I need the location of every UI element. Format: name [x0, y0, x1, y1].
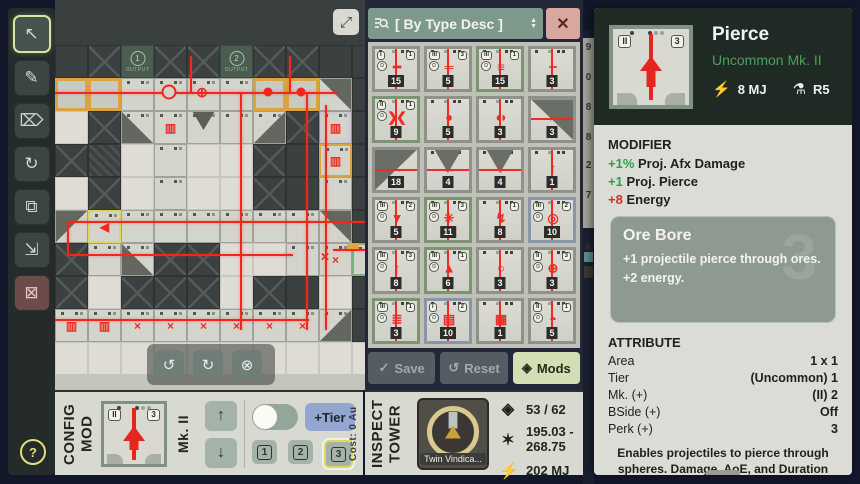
map-tile[interactable]: 2OUTPUT [220, 45, 253, 78]
mod-item[interactable]: ↯18 [476, 197, 524, 243]
map-tile[interactable] [121, 144, 154, 177]
damage-range-icon: ✶ [499, 430, 517, 450]
mod-glyph: ↑ [550, 161, 555, 174]
mod-glyph: ↯ [496, 212, 505, 225]
map-tile[interactable] [220, 144, 253, 177]
config-mod-preview-icon: II 3 [101, 401, 167, 467]
readout-char: 8 [583, 102, 594, 113]
map-tile[interactable] [55, 111, 88, 144]
tier-badge: 2 [406, 202, 415, 211]
map-tile[interactable] [286, 210, 319, 243]
tile-glyph: ▥ [330, 154, 341, 166]
energy-icon: ⚡ [712, 80, 731, 98]
map-tile[interactable] [154, 177, 187, 210]
erase-tool[interactable]: ⌦ [14, 103, 50, 139]
mod-count: 1 [494, 327, 505, 339]
map-tile[interactable]: × [154, 309, 187, 342]
mod-count: 15 [492, 75, 508, 87]
beam-line [55, 319, 309, 321]
attribute-row: Area1 x 1 [608, 354, 838, 368]
mk-badge: II [533, 252, 542, 261]
config-mod-panel: CONFIG MOD II 3 Mk. II ↑ ↓ +Tier 123 Cos… [55, 390, 363, 475]
map-tile[interactable] [220, 210, 253, 243]
map-tile[interactable] [319, 309, 352, 342]
readout-char: 0 [583, 72, 594, 83]
detail-body: MODIFIER +1% Proj. Afx Damage+1 Proj. Pi… [594, 125, 852, 475]
mk-badge: II [377, 101, 386, 110]
map-tile[interactable] [187, 144, 220, 177]
mod-glyph: ▲ [443, 262, 454, 275]
mod-item[interactable]: ❯❮II1⊙9 [372, 96, 420, 142]
map-tile[interactable] [187, 177, 220, 210]
map-tile[interactable] [187, 276, 220, 309]
beam-orange-marker [347, 243, 359, 249]
map-tile[interactable] [121, 243, 154, 276]
beam-line [67, 254, 293, 256]
tile-glyph: ▥ [165, 121, 176, 133]
tier-badge: 1 [562, 303, 571, 312]
tower-stats: ◈53 / 62✶195.03 - 268.75⚡202 MJ [499, 399, 574, 481]
mod-glyph: ≡ [497, 61, 503, 74]
mod-slots-value: 53 / 62 [526, 402, 566, 417]
beam-line [67, 221, 365, 223]
map-tile[interactable] [88, 111, 121, 144]
mod-item[interactable]: ↑4 [476, 147, 524, 193]
map-tile[interactable]: ◀ [88, 210, 121, 243]
tower-name-label: Twin Vindica... [420, 453, 486, 465]
mod-count: 1 [546, 176, 557, 188]
gear-badge-icon: ⊙ [377, 262, 387, 272]
bside-toggle[interactable] [252, 404, 298, 430]
map-tile[interactable] [286, 144, 319, 177]
map-tile[interactable] [286, 243, 319, 276]
mod-count: 3 [546, 126, 557, 138]
mod-item[interactable]: →18 [372, 147, 420, 193]
mods-header: [ By Type Desc ] ▲▼ ✕ [368, 8, 580, 39]
cancel-button[interactable]: ⊗ [232, 350, 262, 379]
map-tile[interactable] [154, 144, 187, 177]
beam-line [67, 221, 69, 255]
mod-item[interactable]: ←3 [528, 96, 576, 142]
mod-count: 3 [546, 277, 557, 289]
background-readout-strip: 908827k [583, 30, 594, 484]
output-label: OUTPUT [221, 67, 252, 73]
mod-item[interactable]: ≡III1⊙15 [476, 46, 524, 92]
modifier-line: +1% Proj. Afx Damage [608, 156, 838, 171]
mod-item[interactable]: ↑III3⊙8 [372, 247, 420, 293]
mk-badge: III [377, 303, 388, 312]
beam-dot-marker [297, 88, 306, 97]
map-tile[interactable] [121, 78, 154, 111]
save-button[interactable]: ✓ Save [368, 352, 435, 384]
perk-level-1-button[interactable]: 1 [252, 440, 277, 464]
item-rarity: Uncommon Mk. II [712, 52, 822, 68]
map-tile[interactable] [121, 177, 154, 210]
map-tile[interactable] [121, 111, 154, 144]
mk-badge: I [429, 303, 437, 312]
map-tile[interactable] [286, 177, 319, 210]
gear-badge-icon: ⊙ [481, 61, 491, 71]
attribute-row: Perk (+)3 [608, 422, 838, 436]
map-tile[interactable] [352, 309, 365, 342]
help-button[interactable]: ? [20, 439, 46, 465]
map-tile[interactable] [352, 45, 365, 78]
mod-glyph: ≣ [392, 312, 401, 325]
map-tile[interactable] [220, 276, 253, 309]
mk-badge: III [377, 252, 388, 261]
map-tile[interactable] [220, 78, 253, 111]
tile-glyph: ▥ [330, 121, 341, 133]
tier-badge: 3 [458, 202, 467, 211]
map-tile[interactable]: × [220, 309, 253, 342]
modifier-heading: MODIFIER [608, 137, 838, 152]
mod-item[interactable]: ═III3⊙5 [424, 46, 472, 92]
mod-glyph: ━ [393, 61, 399, 74]
attribute-row: Tier(Uncommon) 1 [608, 371, 838, 385]
gear-badge-icon: ⊙ [429, 313, 439, 323]
map-tile[interactable] [253, 111, 286, 144]
map-tile[interactable]: ▥ [319, 111, 352, 144]
mod-glyph: ❯❮ [387, 111, 405, 124]
mod-item[interactable]: ✳III3⊙11 [424, 197, 472, 243]
map-tile[interactable]: ▥ [154, 111, 187, 144]
map-tile[interactable] [352, 210, 365, 243]
reset-icon: ↺ [448, 360, 459, 376]
chevron-updown-icon: ▲▼ [530, 18, 537, 30]
draw-tool[interactable]: ✎ [14, 60, 50, 96]
mk-badge: III [429, 51, 440, 60]
mod-count: 3 [390, 327, 401, 339]
energy-icon: ⚡ [499, 461, 517, 481]
close-button[interactable]: ✕ [546, 8, 580, 39]
tile-glyph: ▥ [99, 319, 110, 331]
map-tile[interactable] [253, 276, 286, 309]
map-tile[interactable] [154, 276, 187, 309]
map-tile[interactable] [55, 144, 88, 177]
mod-glyph: ╌ [549, 61, 555, 74]
map-tile[interactable]: × [121, 309, 154, 342]
map-tile[interactable] [352, 342, 365, 375]
mod-count: 5 [546, 327, 557, 339]
mod-item[interactable]: ▼III2⊙5 [372, 197, 420, 243]
map-tile[interactable] [154, 243, 187, 276]
map-tile[interactable] [88, 177, 121, 210]
gear-badge-icon: ⊙ [429, 61, 439, 71]
mod-item[interactable]: ◓II1⊙5 [528, 298, 576, 344]
perk-card: Ore Bore +1 projectile pierce through or… [610, 216, 836, 323]
map-tile[interactable] [121, 210, 154, 243]
map-tile[interactable] [55, 78, 88, 111]
map-tile[interactable] [253, 210, 286, 243]
mod-item[interactable]: ▲III1⊙6 [424, 247, 472, 293]
mod-count: 8 [494, 226, 505, 238]
tier-badge: 2 [562, 202, 571, 211]
mk-level-label: Mk. II [175, 396, 191, 472]
attribute-row: Mk. (+)(II) 2 [608, 388, 838, 402]
map-viewport[interactable]: 1OUTPUT2OUTPUT▥▥▥◀×▥▥××××××⊕× ⤢ ↺ ↻ ⊗ [55, 0, 365, 390]
item-stats: ⚡8 MJ ⚗R5 [712, 80, 830, 98]
map-tile[interactable] [220, 243, 253, 276]
config-mod-title: CONFIG MOD [61, 396, 96, 472]
map-tile[interactable] [88, 144, 121, 177]
readout-char: 9 [583, 42, 594, 53]
map-tile[interactable] [352, 276, 365, 309]
mod-grid: ━I1⊙15═III3⊙5≡III1⊙15╌3❯❮II1⊙9●5◖◗3←3→18… [368, 42, 580, 348]
readout-char: 8 [583, 132, 594, 143]
map-tile[interactable] [88, 276, 121, 309]
gear-badge-icon: ⊙ [377, 212, 387, 222]
mod-glyph: ▼ [391, 212, 402, 225]
tile-glyph: × [233, 319, 240, 331]
mod-item[interactable]: ◖◗3 [476, 96, 524, 142]
perk-level-buttons: 123 [252, 440, 353, 468]
item-title: Pierce [712, 24, 769, 46]
reset-button[interactable]: ↺ Reset [440, 352, 507, 384]
map-tile[interactable] [55, 276, 88, 309]
tier-badge: 3 [406, 252, 415, 261]
map-tile[interactable] [319, 210, 352, 243]
mk-badge: I [377, 51, 385, 60]
mod-item[interactable]: ≣III1⊙3 [372, 298, 420, 344]
map-tile[interactable] [55, 243, 88, 276]
scroll-handle[interactable] [706, 470, 740, 475]
map-tile[interactable] [154, 45, 187, 78]
map-tile[interactable] [352, 78, 365, 111]
toggle-knob [253, 405, 277, 429]
mod-count: 3 [494, 126, 505, 138]
map-tile[interactable]: × [187, 309, 220, 342]
check-icon: ✓ [379, 360, 390, 376]
map-tile[interactable] [154, 210, 187, 243]
mk-badge: III [429, 202, 440, 211]
tier-badge: 1 [406, 303, 415, 312]
map-tile[interactable] [286, 111, 319, 144]
delete-tool[interactable]: ⊠ [14, 275, 50, 311]
tower-flask-icon [445, 425, 461, 438]
sort-label: [ By Type Desc ] [395, 16, 524, 32]
mod-glyph: ⊕ [548, 262, 557, 275]
mod-count: 5 [442, 126, 453, 138]
mod-count: 10 [440, 327, 456, 339]
tool-sidebar: ↖✎⌦↻⧉⇲⊠ ? [8, 8, 55, 475]
map-tile[interactable] [352, 144, 365, 177]
map-tile[interactable] [286, 342, 319, 375]
map-tile[interactable]: × [253, 309, 286, 342]
perk-watermark: 3 [781, 225, 817, 289]
map-tile[interactable] [121, 276, 154, 309]
detail-header: II 3 Pierce Uncommon Mk. II ⚡8 MJ ⚗R5 [594, 8, 852, 125]
energy-value: 8 MJ [738, 82, 767, 97]
beam-line [325, 105, 327, 330]
select-tool[interactable]: ↖ [13, 15, 51, 53]
gear-badge-icon: ⊙ [377, 61, 387, 71]
research-flask-icon: ⚗ [793, 80, 806, 98]
map-tile[interactable] [187, 210, 220, 243]
map-tile[interactable] [253, 177, 286, 210]
mod-count: 5 [390, 226, 401, 238]
mod-glyph: ↔ [443, 161, 454, 174]
gear-badge-icon: ⊙ [533, 262, 543, 272]
inspect-tower-title: INSPECT TOWER [369, 396, 404, 472]
map-tile[interactable] [220, 111, 253, 144]
gear-badge-icon: ⊙ [429, 212, 439, 222]
mod-glyph: ○ [497, 262, 503, 275]
map-edit-toolbar: ↺ ↻ ⊗ [147, 344, 275, 385]
mk-badge: III [377, 202, 388, 211]
beam-line [240, 92, 242, 330]
tower-stat-energy: ⚡202 MJ [499, 461, 574, 481]
mod-count: 10 [544, 226, 560, 238]
modifier-line: +8 Energy [608, 192, 838, 207]
tile-glyph: × [200, 319, 207, 331]
map-tile[interactable] [55, 177, 88, 210]
tower-stat-mod-slots: ◈53 / 62 [499, 399, 574, 419]
diamond-icon: ◈ [522, 360, 532, 376]
map-tile[interactable] [187, 111, 220, 144]
mod-glyph: ◓ [549, 312, 555, 325]
mk-badge: III [429, 252, 440, 261]
readout-char: 2 [583, 160, 594, 171]
map-tile[interactable] [352, 177, 365, 210]
research-value: R5 [813, 82, 830, 97]
expand-map-button[interactable]: ⤢ [333, 9, 359, 35]
rotate-auto-tool[interactable]: ↻ [14, 146, 50, 182]
mod-item[interactable]: ◎III2⊙10 [528, 197, 576, 243]
map-tile[interactable] [319, 342, 352, 375]
map-tile[interactable] [253, 243, 286, 276]
tier-badge: 2 [458, 303, 467, 312]
damage-range-value: 195.03 - 268.75 [526, 425, 574, 455]
paste-tool[interactable]: ⇲ [14, 232, 50, 268]
map-top-bar [55, 0, 365, 46]
divider [244, 400, 245, 468]
map-tile[interactable] [319, 45, 352, 78]
map-tile[interactable] [319, 78, 352, 111]
mk-up-button[interactable]: ↑ [205, 401, 237, 431]
rotate-ccw-button[interactable]: ↺ [154, 350, 184, 379]
mod-count: 4 [442, 176, 453, 188]
mk-badge: III [533, 202, 544, 211]
beam-ring-marker [162, 85, 177, 100]
map-tile[interactable] [55, 342, 88, 375]
mod-item[interactable]: ╌3 [528, 46, 576, 92]
energy-value: 202 MJ [526, 463, 569, 478]
mod-glyph: ← [547, 111, 558, 124]
tile-glyph: × [167, 319, 174, 331]
attribute-heading: ATTRIBUTE [608, 335, 838, 350]
mod-item[interactable]: ↔4 [424, 147, 472, 193]
inspect-tower-panel: INSPECT TOWER Twin Vindica... ◈53 / 62✶1… [365, 390, 583, 475]
copy-tool[interactable]: ⧉ [14, 189, 50, 225]
mod-item[interactable]: ▦1 [476, 298, 524, 344]
mod-count: 8 [390, 277, 401, 289]
mod-count: 3 [546, 75, 557, 87]
app-root: { "sidebar": { "tools": [ {"name":"selec… [0, 0, 860, 484]
mods-footer: ✓ Save ↺ Reset ◈ Mods [368, 352, 580, 384]
item-icon: II 3 [609, 25, 693, 109]
pin-dots [630, 31, 634, 35]
map-tile[interactable]: ▥ [55, 309, 88, 342]
modifier-line: +1 Proj. Pierce [608, 174, 838, 189]
map-tile[interactable] [88, 78, 121, 111]
cost-label: Cost: 0 Au [348, 398, 360, 470]
map-tile[interactable]: 1OUTPUT [121, 45, 154, 78]
output-label: OUTPUT [122, 67, 153, 73]
attribute-row: BSide (+)Off [608, 405, 838, 419]
map-tile[interactable]: ▥ [319, 144, 352, 177]
map-tile[interactable] [286, 276, 319, 309]
tier-badge: 1 [406, 101, 415, 110]
map-tile[interactable] [187, 243, 220, 276]
mod-item[interactable]: ━I1⊙15 [372, 46, 420, 92]
mod-item[interactable]: ↑1 [528, 147, 576, 193]
map-tile[interactable]: × [286, 309, 319, 342]
mod-count: 11 [440, 226, 456, 238]
map-tile[interactable]: ▥ [88, 309, 121, 342]
mod-count: 3 [494, 277, 505, 289]
mod-glyph: ◎ [547, 212, 556, 225]
map-tile[interactable] [352, 111, 365, 144]
tower-preview[interactable]: Twin Vindica... [417, 398, 489, 470]
map-tile[interactable] [319, 276, 352, 309]
mod-glyph: ● [445, 111, 451, 124]
tile-glyph: × [134, 319, 141, 331]
beam-line [306, 92, 308, 330]
map-tile[interactable] [88, 243, 121, 276]
mod-slots-icon: ◈ [499, 399, 517, 419]
map-tile[interactable] [253, 144, 286, 177]
tier-badge: 3 [562, 252, 571, 261]
mod-item[interactable]: ⊕II3⊙3 [528, 247, 576, 293]
mod-glyph: → [391, 161, 402, 174]
gear-badge-icon: ⊙ [429, 262, 439, 272]
tile-glyph: × [332, 253, 339, 265]
tower-stat-damage-range: ✶195.03 - 268.75 [499, 425, 574, 455]
map-tile[interactable] [55, 210, 88, 243]
mod-glyph: ✳ [444, 212, 453, 225]
map-tile[interactable] [55, 45, 88, 78]
item-detail-panel: II 3 Pierce Uncommon Mk. II ⚡8 MJ ⚗R5 MO… [594, 8, 852, 475]
mod-glyph: ◖◗ [494, 111, 506, 124]
mod-item[interactable]: ●5 [424, 96, 472, 142]
map-tile[interactable] [319, 177, 352, 210]
gear-badge-icon: ⊙ [533, 313, 543, 323]
map-tile[interactable] [88, 45, 121, 78]
perk-level-2-button[interactable]: 2 [288, 440, 313, 464]
sort-dropdown[interactable]: [ By Type Desc ] ▲▼ [368, 8, 543, 39]
beam-line [190, 56, 192, 94]
map-tile[interactable] [253, 45, 286, 78]
mk-down-button[interactable]: ↓ [205, 438, 237, 468]
mod-item[interactable]: ▤I2⊙10 [424, 298, 472, 344]
mod-count: 5 [442, 75, 453, 87]
rotate-cw-button[interactable]: ↻ [193, 350, 223, 379]
tier-badge: 1 [458, 252, 467, 261]
tier-badge: 1 [406, 51, 415, 60]
map-tile[interactable] [88, 342, 121, 375]
mods-button[interactable]: ◈ Mods [513, 352, 580, 384]
mod-count: 18 [388, 176, 404, 188]
tile-glyph: × [266, 319, 273, 331]
mod-glyph: ↑ [394, 262, 399, 275]
attribute-rows: Area1 x 1Tier(Uncommon) 1Mk. (+)(II) 2BS… [608, 354, 838, 436]
mod-item[interactable]: ○3 [476, 247, 524, 293]
mod-glyph: ▦ [495, 312, 505, 325]
modifier-lines: +1% Proj. Afx Damage+1 Proj. Pierce+8 En… [608, 156, 838, 207]
tier-badge: 1 [510, 51, 519, 60]
map-tile[interactable] [220, 177, 253, 210]
mod-count: 15 [388, 75, 404, 87]
